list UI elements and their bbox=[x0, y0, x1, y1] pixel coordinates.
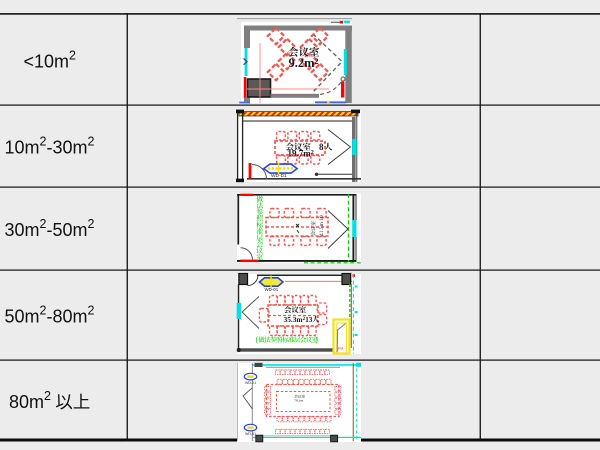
svg-text:WD-01: WD-01 bbox=[265, 287, 279, 292]
svg-text:9.2m2: 9.2m2 bbox=[289, 56, 319, 70]
svg-text:50m2-80m2: 50m2-80m2 bbox=[5, 304, 95, 327]
svg-text:41.5m 10: 41.5m 10 bbox=[319, 215, 325, 236]
svg-text:WD-D1: WD-D1 bbox=[271, 173, 287, 179]
svg-text:78.1m: 78.1m bbox=[294, 399, 303, 403]
svg-text:30m2-50m2: 30m2-50m2 bbox=[5, 217, 95, 240]
svg-text:FM: FM bbox=[338, 347, 343, 351]
svg-text:19.7m2: 19.7m2 bbox=[288, 149, 314, 159]
svg-text:10m2-30m2: 10m2-30m2 bbox=[5, 135, 95, 158]
svg-text:<10m2: <10m2 bbox=[24, 49, 77, 72]
svg-text:35.3m213: 35.3m213 bbox=[284, 315, 313, 324]
svg-text:WD-01: WD-01 bbox=[245, 432, 256, 436]
svg-text:8: 8 bbox=[319, 142, 324, 152]
svg-text:WD-01: WD-01 bbox=[245, 381, 256, 385]
